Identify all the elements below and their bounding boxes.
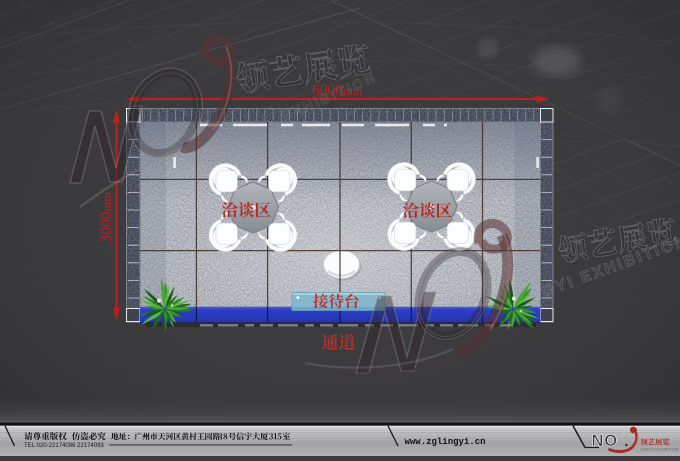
svg-text:www.zglingyi.cn: www.zglingyi.cn [405,437,486,447]
svg-text:TEL:020-22174096 22174093: TEL:020-22174096 22174093 [24,443,104,449]
svg-text:NO: NO [592,432,618,450]
svg-text:LINGYI EXHIBITION: LINGYI EXHIBITION [641,447,679,451]
svg-text:3000mm: 3000mm [98,192,115,243]
